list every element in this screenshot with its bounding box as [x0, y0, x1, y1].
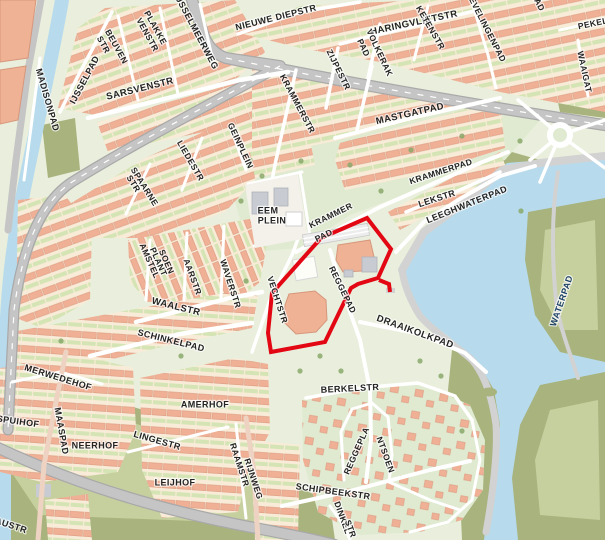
map-canvas[interactable]: MADISONPADIJSSELPADBEUVENSTRPLAKKEVENSTR…	[0, 0, 605, 540]
school-annex	[362, 257, 377, 272]
large-building	[284, 291, 327, 334]
street-map-svg: MADISONPADIJSSELPADBEUVENSTRPLAKKEVENSTR…	[0, 0, 605, 540]
map-label-leijhof: LEIJHOF	[155, 477, 196, 487]
map-label-eem: EEM	[258, 205, 279, 215]
map-label-plein: PLEIN	[258, 215, 287, 225]
map-label-neerhof: NEERHOF	[72, 440, 119, 450]
map-label-amerhof: AMERHOF	[181, 399, 229, 409]
